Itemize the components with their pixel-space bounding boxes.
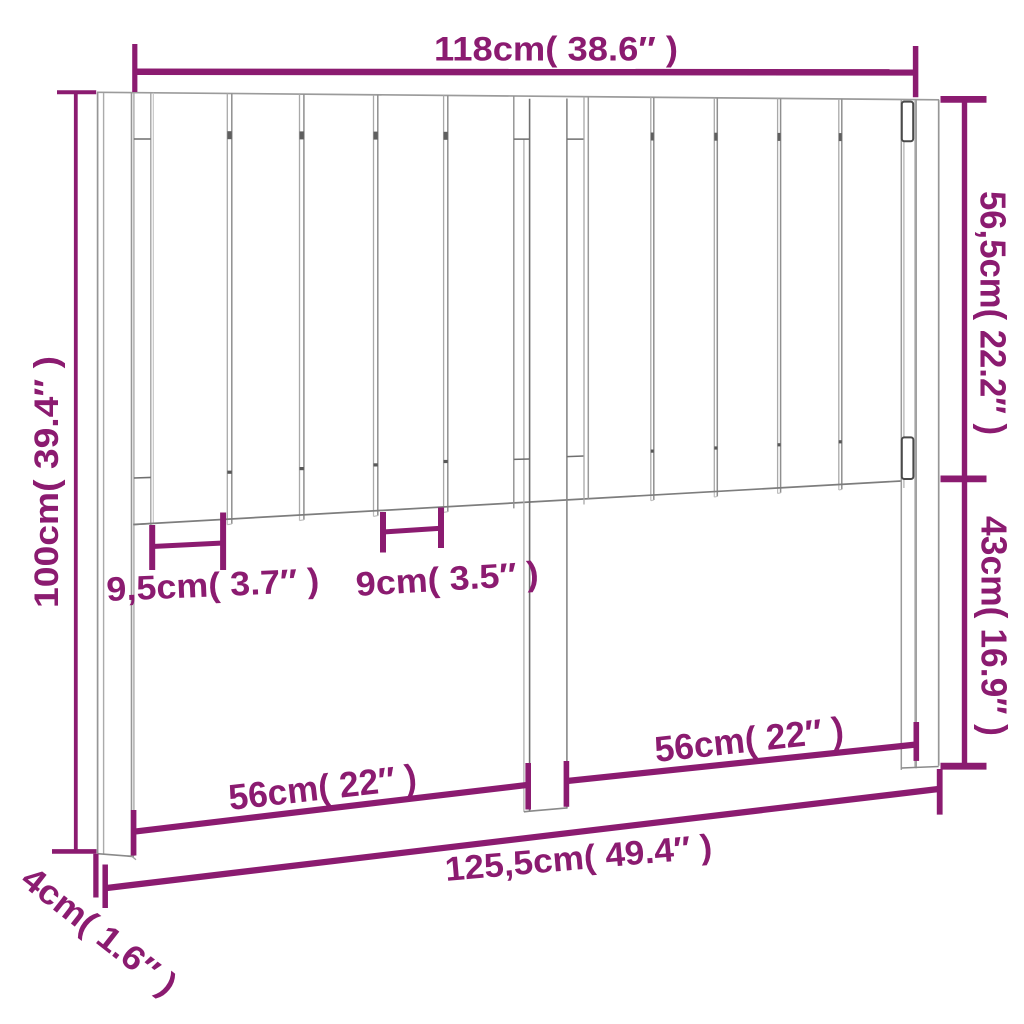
svg-text:118cm( 38.6″ ): 118cm( 38.6″ ) [434, 30, 678, 68]
svg-text:43cm( 16.9″ ): 43cm( 16.9″ ) [974, 516, 1015, 736]
svg-text:56,5cm( 22.2″ ): 56,5cm( 22.2″ ) [973, 191, 1014, 435]
svg-text:100cm( 39.4″ ): 100cm( 39.4″ ) [28, 356, 66, 608]
